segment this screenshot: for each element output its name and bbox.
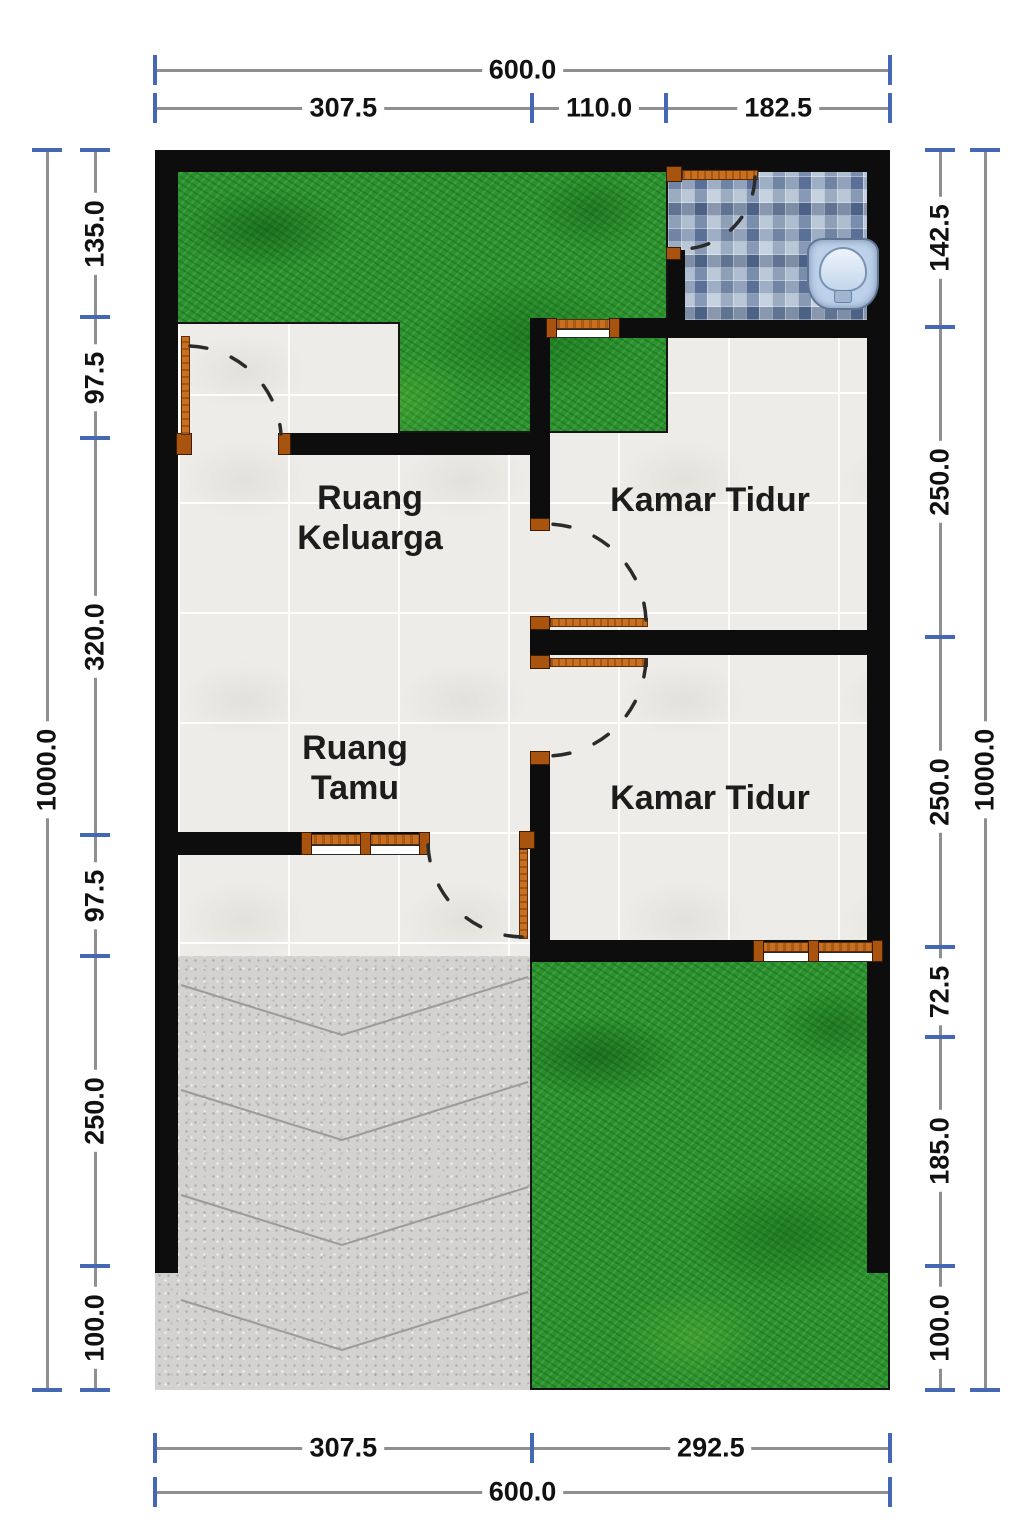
- dim-top-inner-tick: [153, 93, 157, 123]
- dim-bottom-inner-tick: [153, 1433, 157, 1463]
- dim-left-outer-tick: [32, 1388, 62, 1392]
- dim-left-outer-label: 1000.0: [31, 722, 64, 819]
- dim-left-inner-tick: [80, 1264, 110, 1268]
- entry-door-swing-arc: [190, 346, 281, 434]
- dim-bottom-outer-label: 600.0: [482, 1476, 564, 1509]
- dim-top-outer-tick: [153, 55, 157, 85]
- dim-top-inner-tick: [664, 93, 668, 123]
- room-label-kamar-tidur-1: Kamar Tidur: [610, 480, 810, 520]
- dim-left-inner-label: 250.0: [79, 1070, 112, 1152]
- bedroom1-door-swing-arc: [547, 524, 646, 620]
- dim-top-outer-tick: [888, 55, 892, 85]
- dim-left-inner-label: 97.5: [79, 862, 112, 929]
- dim-right-outer-label: 1000.0: [969, 722, 1002, 819]
- dim-right-inner-tick: [925, 325, 955, 329]
- room-label-ruang-tamu: Ruang Tamu: [255, 728, 455, 808]
- dim-top-inner-tick: [888, 93, 892, 123]
- dim-left-inner-tick: [80, 148, 110, 152]
- dim-right-outer-tick: [970, 148, 1000, 152]
- dim-left-inner-tick: [80, 1388, 110, 1392]
- dim-right-inner-tick: [925, 1388, 955, 1392]
- bathroom-door-swing-arc: [683, 177, 755, 249]
- dim-left-inner-label: 320.0: [79, 596, 112, 678]
- dim-right-inner-label: 100.0: [924, 1287, 957, 1369]
- dim-left-inner-tick: [80, 436, 110, 440]
- dim-top-inner-label: 182.5: [737, 92, 819, 125]
- dim-top-inner-label: 307.5: [303, 92, 385, 125]
- dim-bottom-inner-tick: [530, 1433, 534, 1463]
- room-label-kamar-tidur-2: Kamar Tidur: [610, 778, 810, 818]
- dim-bottom-inner-label: 292.5: [670, 1432, 752, 1465]
- concrete-chevron-lines: [181, 977, 528, 1390]
- dim-top-inner-tick: [530, 93, 534, 123]
- squat-toilet-icon: [807, 238, 879, 310]
- dim-left-inner-tick: [80, 315, 110, 319]
- floor-plan: Ruang Keluarga Kamar Tidur Ruang Tamu Ka…: [155, 150, 890, 1390]
- dim-bottom-inner-line: [155, 1447, 890, 1450]
- dim-left-inner-label: 97.5: [79, 345, 112, 412]
- dim-left-inner-line: [94, 150, 97, 1390]
- dim-left-outer-tick: [32, 148, 62, 152]
- dim-right-inner-tick: [925, 945, 955, 949]
- dim-left-inner-label: 135.0: [79, 193, 112, 275]
- floor-plan-page: Ruang Keluarga Kamar Tidur Ruang Tamu Ka…: [0, 0, 1024, 1536]
- dim-right-inner-label: 72.5: [924, 958, 957, 1025]
- dim-bottom-outer-tick: [888, 1477, 892, 1507]
- toilet-drain: [834, 290, 852, 303]
- dim-right-inner-label: 185.0: [924, 1111, 957, 1193]
- dim-top-outer-label: 600.0: [482, 54, 564, 87]
- dim-right-outer-tick: [970, 1388, 1000, 1392]
- dim-bottom-inner-label: 307.5: [303, 1432, 385, 1465]
- dim-left-inner-tick: [80, 954, 110, 958]
- dim-right-inner-label: 250.0: [924, 751, 957, 833]
- dim-top-inner-label: 110.0: [559, 92, 639, 125]
- dim-left-inner-label: 100.0: [79, 1287, 112, 1369]
- dim-right-inner-tick: [925, 1035, 955, 1039]
- dim-right-inner-tick: [925, 148, 955, 152]
- dim-left-inner-tick: [80, 833, 110, 837]
- dim-right-inner-tick: [925, 635, 955, 639]
- dim-bottom-outer-tick: [153, 1477, 157, 1507]
- room-label-ruang-keluarga: Ruang Keluarga: [260, 478, 480, 558]
- dim-right-inner-tick: [925, 1264, 955, 1268]
- front-door-swing-arc: [428, 845, 522, 937]
- bedroom2-door-swing-arc: [547, 660, 646, 756]
- dim-right-inner-label: 142.5: [924, 198, 957, 280]
- dim-right-inner-label: 250.0: [924, 441, 957, 523]
- dim-bottom-inner-tick: [888, 1433, 892, 1463]
- toilet-bowl: [819, 247, 867, 292]
